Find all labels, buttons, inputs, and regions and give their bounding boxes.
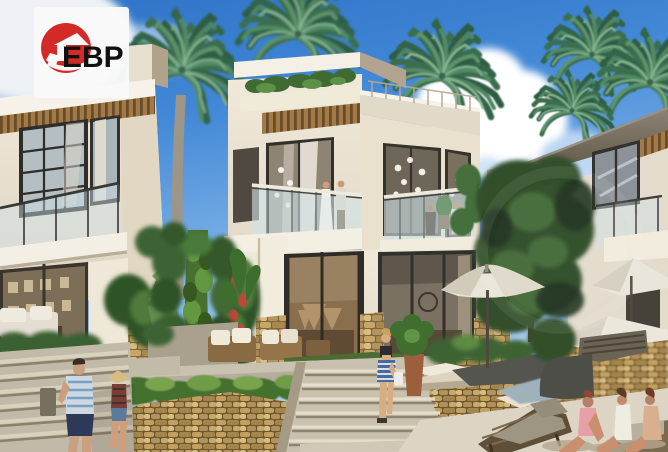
- svg-text:EBP: EBP: [62, 41, 124, 74]
